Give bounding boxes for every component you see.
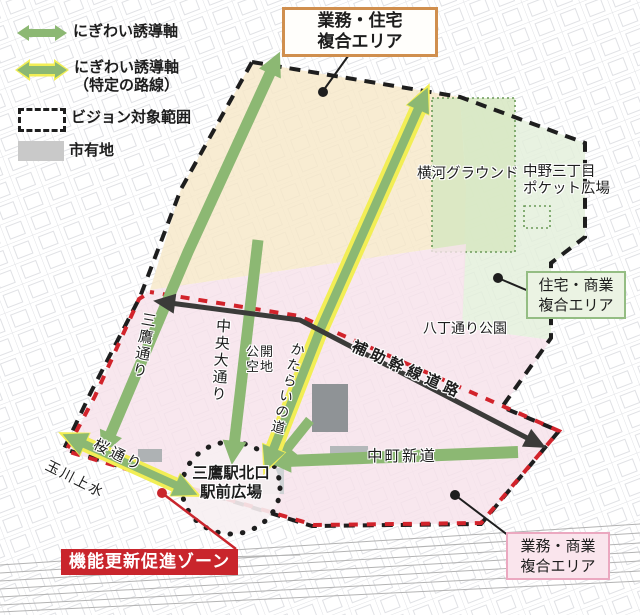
nakacho-shindo-label: 中町新道 — [367, 447, 437, 465]
renewal-zone-label: 機能更新促進ゾーン — [61, 549, 238, 575]
dashed-boundary-icon — [18, 108, 66, 132]
double-arrow-yellow-green-icon — [15, 58, 69, 82]
station-plaza-label: 三鷹駅北口 駅前広場 — [183, 464, 279, 502]
legend-item-axis: にぎわい誘導軸 — [16, 22, 178, 44]
business-residential-area-label: 業務・住宅 複合エリア — [282, 7, 438, 57]
legend-item-city-land: 市有地 — [18, 141, 114, 161]
residential-commercial-area-label: 住宅・商業 複合エリア — [526, 271, 626, 319]
legend-item-vision-area: ビジョン対象範囲 — [18, 108, 191, 132]
legend-vision-area-label: ビジョン対象範囲 — [71, 108, 191, 126]
nakano-pocket-plaza-label: 中野三丁目 ポケット広場 — [523, 164, 610, 198]
legend-city-land-label: 市有地 — [69, 141, 114, 159]
legend-axis-label: にぎわい誘導軸 — [73, 22, 178, 40]
double-arrow-green-icon — [16, 22, 68, 44]
legend-axis-specific-label: にぎわい誘導軸 （特定の路線） — [74, 58, 179, 94]
business-commercial-area-label: 業務・商業 複合エリア — [506, 532, 610, 580]
legend-item-axis-specific: にぎわい誘導軸 （特定の路線） — [15, 58, 179, 94]
gray-fill-icon — [18, 141, 64, 161]
planning-map: にぎわい誘導軸 にぎわい誘導軸 （特定の路線） ビジョン対象範囲 市有地 業務・… — [0, 0, 640, 615]
yokogawa-ground-label: 横河グラウンド — [417, 166, 519, 183]
public-open-space-label: 公開 空地 — [246, 345, 274, 375]
hatcho-dori-park-label: 八丁通り公園 — [423, 321, 507, 338]
